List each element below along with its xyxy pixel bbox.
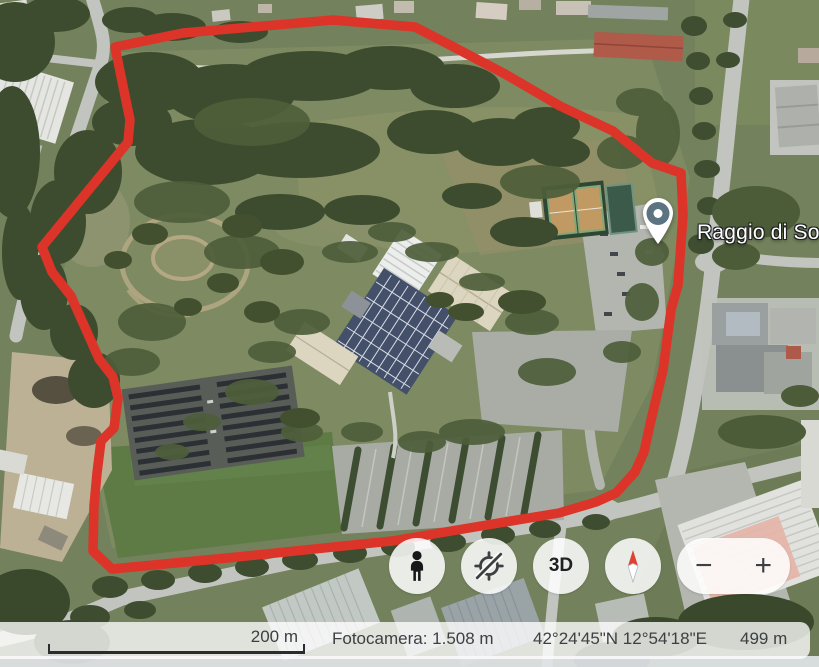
tilt-button[interactable] <box>461 538 517 594</box>
location-pin-label[interactable]: Raggio di So <box>697 221 819 245</box>
compass-button[interactable] <box>605 538 661 594</box>
zoom-control: − + <box>677 538 790 594</box>
zoom-out-button[interactable]: − <box>693 551 715 581</box>
location-pin[interactable] <box>638 196 678 248</box>
map-scale-bar <box>48 644 305 654</box>
3d-label: 3D <box>549 555 573 577</box>
camera-altitude-label: Fotocamera: 1.508 m <box>332 629 494 649</box>
elevation-label: 499 m <box>740 629 787 649</box>
pegman-button[interactable] <box>389 538 445 594</box>
google-earth-view: Raggio di So 3D <box>0 0 819 667</box>
tilt-icon <box>473 550 505 582</box>
coordinates-label: 42°24'45"N 12°54'18"E <box>533 629 707 649</box>
status-bar: 200 m Fotocamera: 1.508 m 42°24'45"N 12°… <box>0 622 810 659</box>
compass-icon <box>621 548 645 584</box>
zoom-in-button[interactable]: + <box>752 551 774 581</box>
3d-button[interactable]: 3D <box>533 538 589 594</box>
pegman-icon <box>404 550 430 582</box>
